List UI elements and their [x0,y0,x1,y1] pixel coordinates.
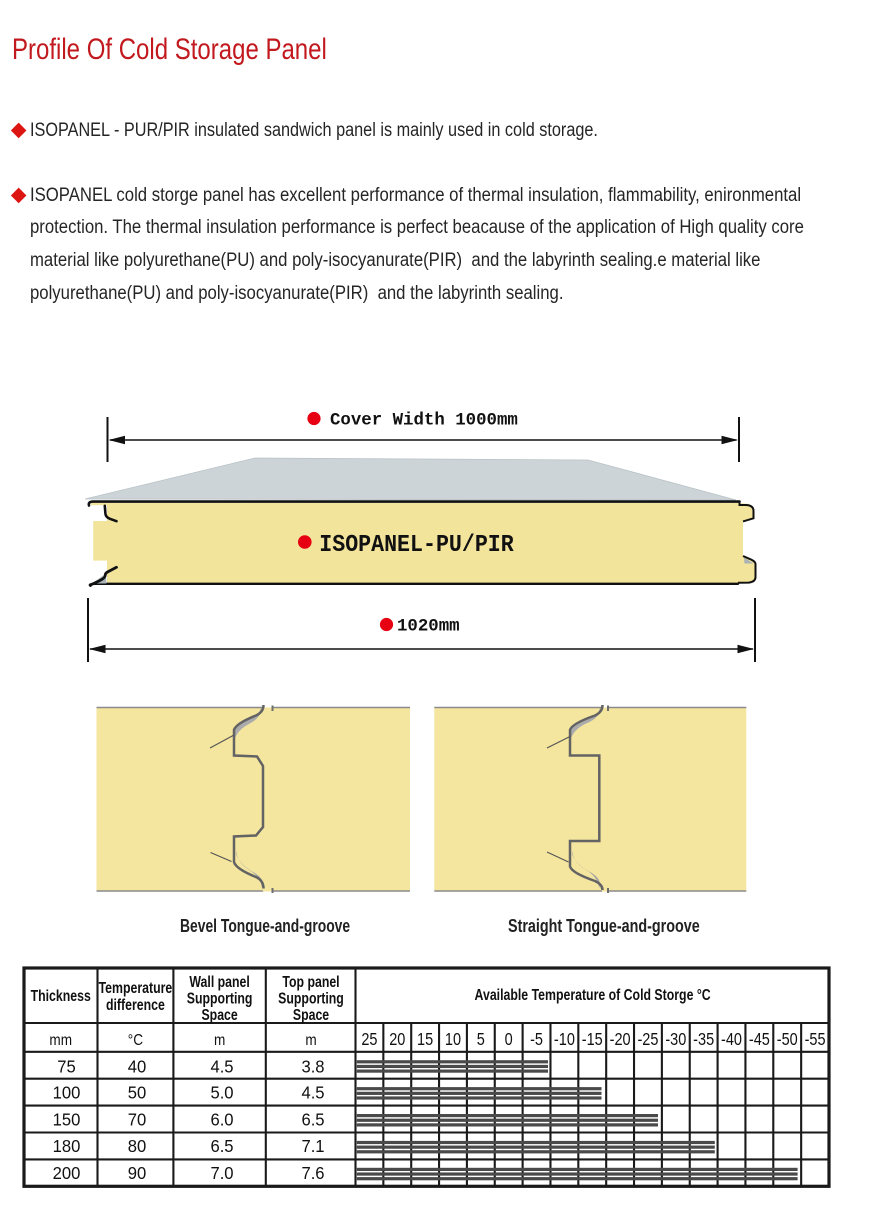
svg-text:1020mm: 1020mm [397,618,460,637]
svg-text:-30: -30 [665,1030,686,1050]
svg-text:-50: -50 [777,1030,798,1050]
svg-text:-45: -45 [749,1030,770,1050]
svg-text:-20: -20 [610,1030,631,1050]
svg-text:Space: Space [201,1007,237,1025]
svg-text:200: 200 [53,1164,81,1183]
svg-text:difference: difference [106,997,165,1015]
svg-text:3.8: 3.8 [301,1057,324,1076]
svg-text:Available Temperature of Cold: Available Temperature of Cold Storge °C [475,987,711,1005]
svg-text:50: 50 [128,1083,146,1102]
svg-text:25: 25 [361,1030,377,1050]
svg-text:150: 150 [53,1110,81,1129]
svg-text:Space: Space [293,1007,329,1025]
svg-text:90: 90 [128,1164,146,1183]
svg-text:ISOPANEL-PU/PIR: ISOPANEL-PU/PIR [319,531,514,558]
svg-text:°C: °C [128,1032,144,1049]
svg-text:15: 15 [417,1030,433,1050]
svg-text:7.0: 7.0 [210,1164,233,1183]
svg-text:180: 180 [53,1137,81,1156]
svg-text:-5: -5 [530,1030,543,1050]
svg-text:20: 20 [389,1030,405,1050]
svg-text:5.0: 5.0 [210,1083,233,1102]
svg-text:5: 5 [477,1030,485,1050]
svg-text:4.5: 4.5 [210,1057,233,1076]
svg-text:75: 75 [57,1057,75,1076]
svg-text:6.5: 6.5 [210,1137,233,1156]
svg-text:-15: -15 [582,1030,603,1050]
svg-text:7.6: 7.6 [301,1164,324,1183]
svg-text:0: 0 [505,1030,513,1050]
svg-text:-40: -40 [721,1030,742,1050]
svg-text:mm: mm [49,1032,72,1049]
svg-text:6.0: 6.0 [210,1110,233,1129]
svg-text:Temperature: Temperature [99,980,173,998]
svg-text:80: 80 [128,1137,146,1156]
svg-text:10: 10 [445,1030,461,1050]
svg-text:40: 40 [128,1057,146,1076]
svg-text:6.5: 6.5 [301,1110,324,1129]
svg-text:-10: -10 [554,1030,575,1050]
svg-text:4.5: 4.5 [301,1083,324,1102]
svg-text:Cover Width 1000mm: Cover Width 1000mm [330,412,518,431]
svg-text:-35: -35 [693,1030,714,1050]
svg-text:100: 100 [53,1083,81,1102]
svg-text:Top panel: Top panel [282,974,339,992]
svg-text:Supporting: Supporting [278,990,344,1008]
svg-text:Thickness: Thickness [31,988,91,1006]
svg-text:Wall panel: Wall panel [189,974,249,992]
svg-text:Supporting: Supporting [187,990,253,1008]
svg-text:-25: -25 [637,1030,658,1050]
svg-text:m: m [214,1032,225,1049]
svg-text:70: 70 [128,1110,146,1129]
svg-text:m: m [305,1032,316,1049]
svg-text:7.1: 7.1 [301,1137,324,1156]
svg-text:-55: -55 [805,1030,826,1050]
